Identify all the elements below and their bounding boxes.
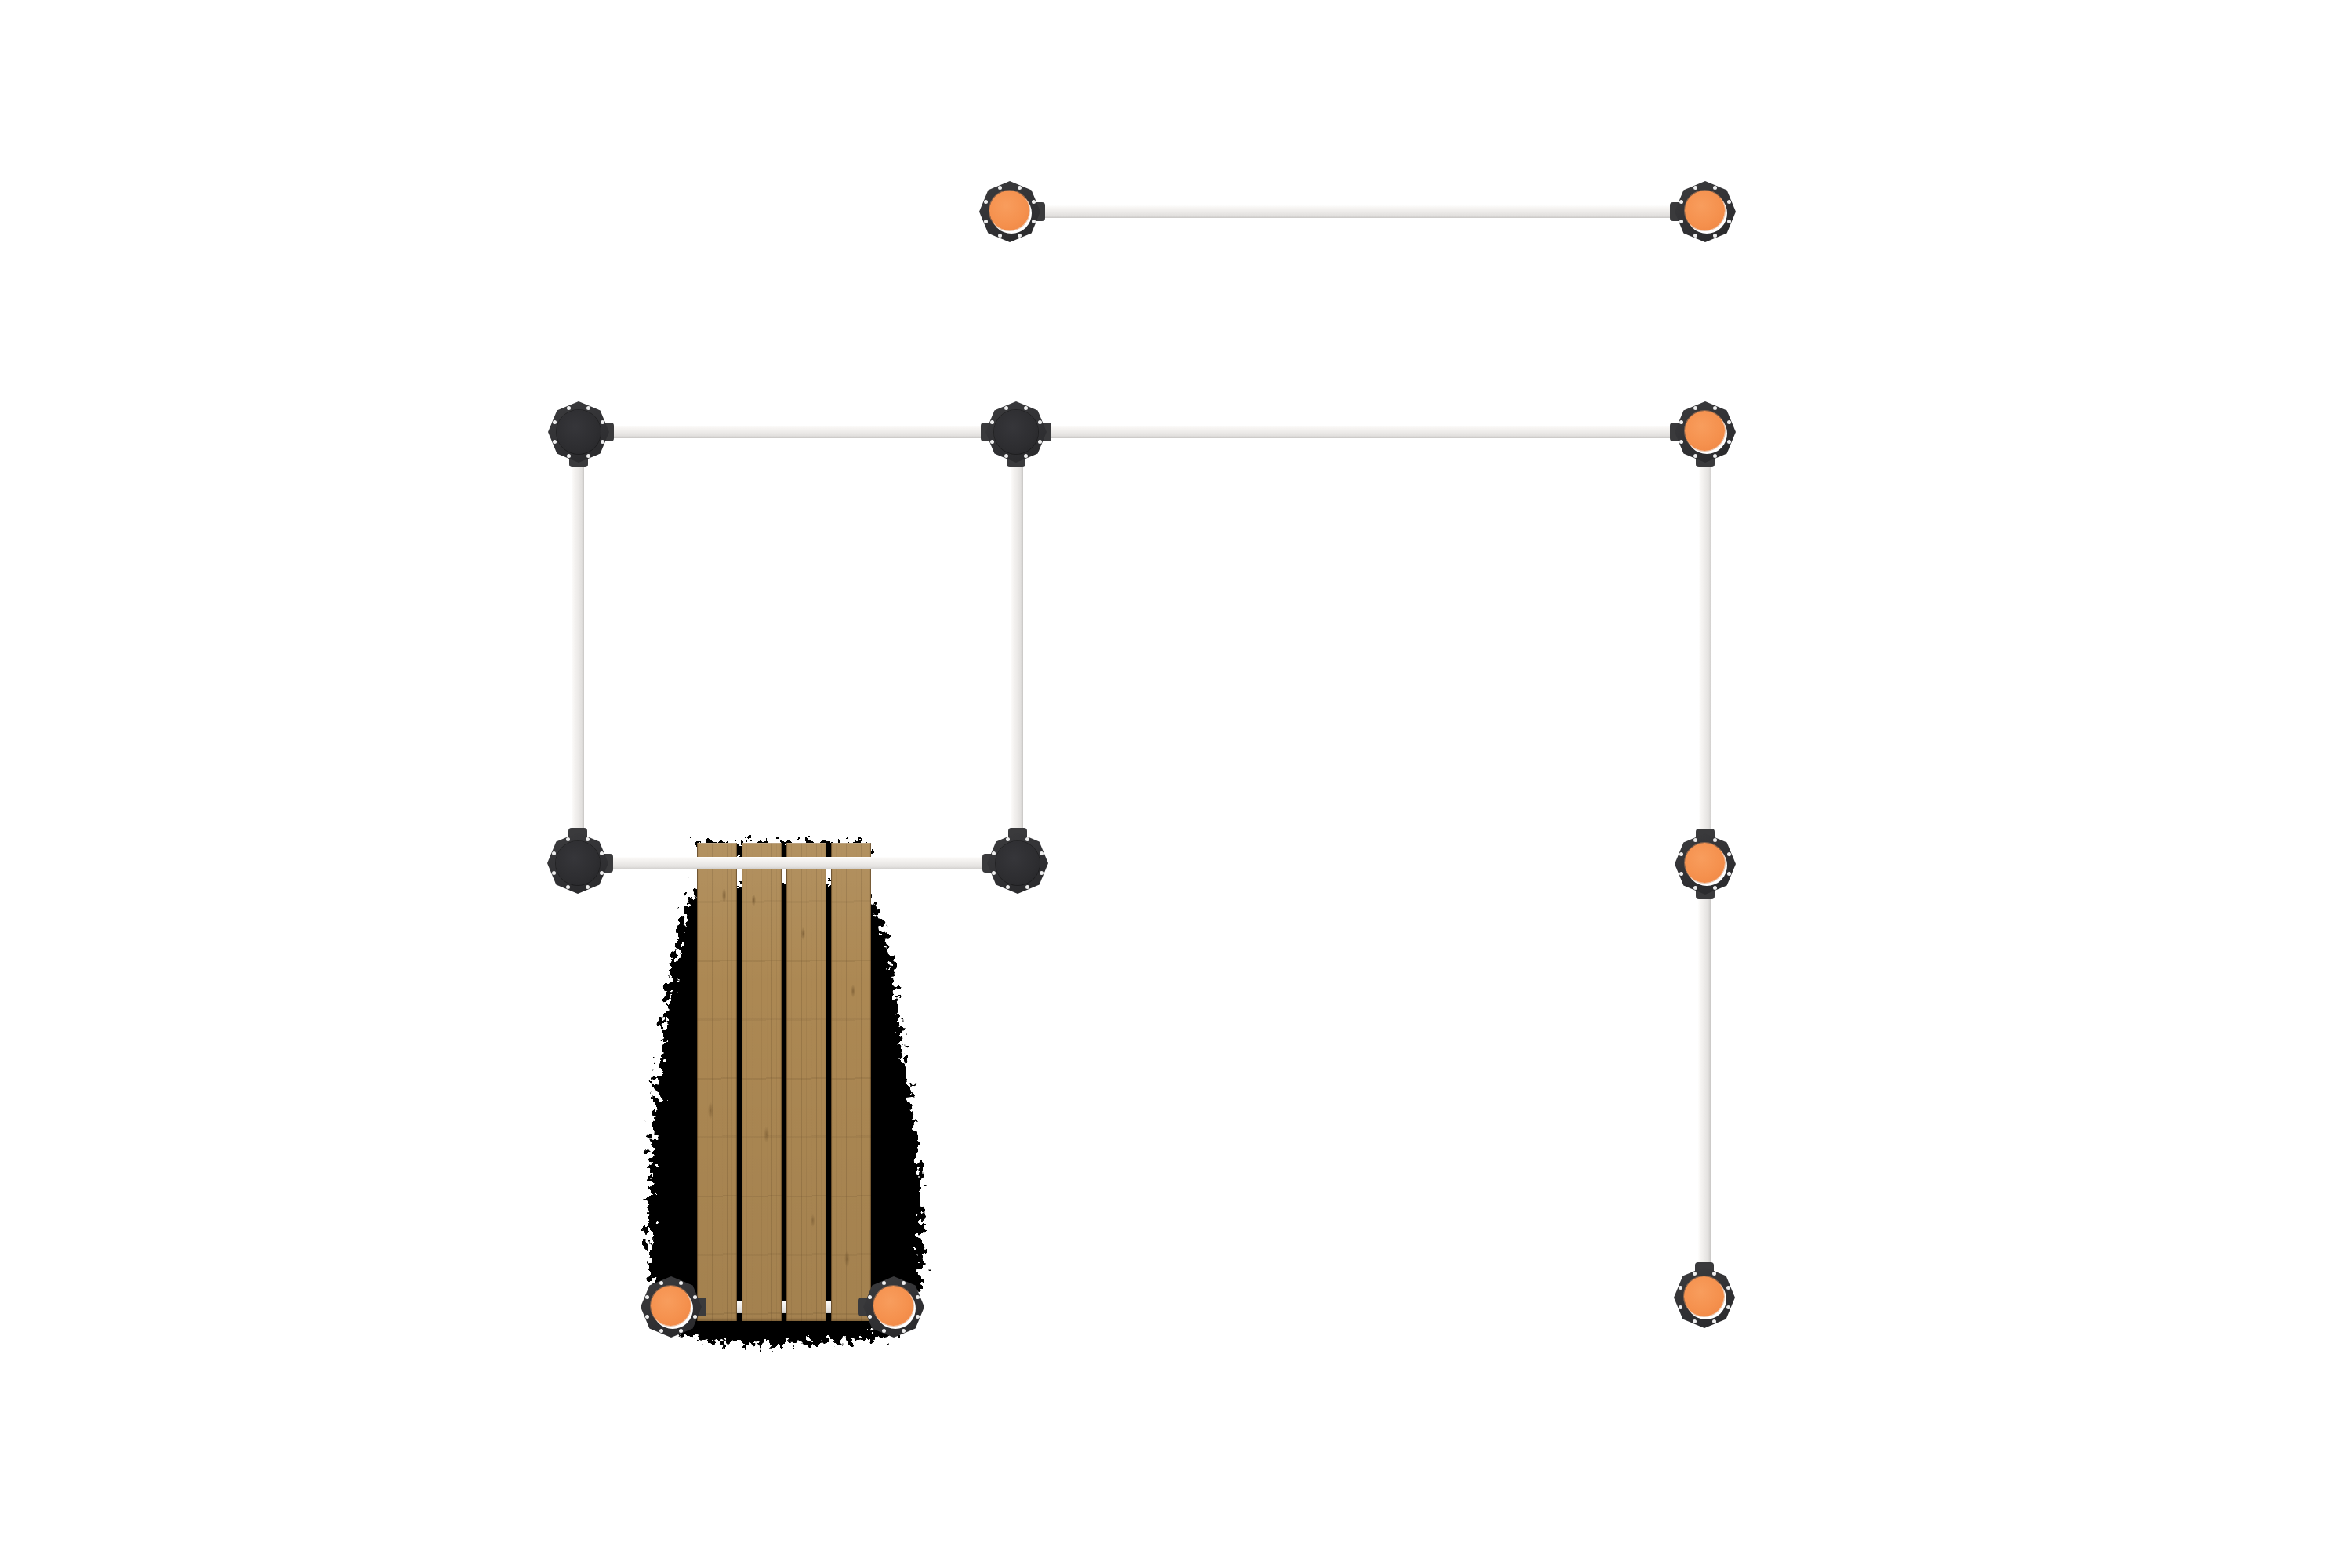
node-cap-orange	[989, 191, 1029, 230]
frame-tube-b6[interactable]	[1699, 432, 1711, 864]
connector-node-n4-black[interactable]	[985, 401, 1047, 463]
node-cap-orange	[651, 1286, 691, 1326]
node-screw-dot	[1693, 1319, 1697, 1323]
connector-node-n1-orange[interactable]	[979, 181, 1040, 242]
node-screw-dot	[1679, 200, 1683, 204]
node-screw-dot	[882, 1329, 886, 1333]
deck-plank-4[interactable]	[831, 843, 871, 1321]
deck-plank-1[interactable]	[697, 843, 737, 1321]
node-screw-dot	[868, 1295, 872, 1299]
deck-shadow-spray	[0, 0, 2352, 1568]
node-screw-dot	[1679, 852, 1683, 856]
node-screw-dot	[992, 851, 996, 855]
node-screw-dot	[601, 420, 604, 424]
node-screw-dot	[1006, 837, 1010, 841]
frame-tube-b5[interactable]	[1011, 432, 1023, 863]
node-screw-dot	[1038, 420, 1042, 424]
connector-node-n9-orange[interactable]	[641, 1276, 702, 1338]
node-screw-dot	[567, 454, 571, 458]
frame-tube-b1[interactable]	[1010, 205, 1705, 218]
frame-tube-b2[interactable]	[579, 426, 1016, 438]
node-screw-dot	[990, 420, 994, 424]
connector-node-n10-orange[interactable]	[863, 1276, 924, 1338]
node-disc-black	[994, 410, 1038, 454]
node-screw-dot	[1006, 885, 1010, 889]
node-screw-dot	[1693, 234, 1697, 238]
node-screw-dot	[1727, 420, 1731, 424]
node-screw-dot	[1693, 454, 1697, 458]
frame-tube-b3[interactable]	[1016, 426, 1705, 438]
deck-plank-2[interactable]	[742, 843, 782, 1321]
node-screw-dot	[552, 851, 556, 855]
node-screw-dot	[567, 406, 571, 410]
connector-node-n7-black[interactable]	[987, 833, 1048, 894]
frame-tube-b4[interactable]	[572, 432, 584, 863]
node-screw-dot	[1693, 886, 1697, 890]
node-cap-orange	[1685, 843, 1725, 883]
frame-tube-b8[interactable]	[1698, 864, 1711, 1298]
node-disc-black	[556, 841, 600, 885]
deck-plank-3[interactable]	[786, 843, 826, 1321]
structure-canvas[interactable]	[0, 0, 2352, 1568]
connector-node-n2-orange[interactable]	[1675, 181, 1736, 242]
node-screw-dot	[916, 1295, 920, 1299]
node-screw-dot	[659, 1329, 663, 1333]
node-screw-dot	[1693, 406, 1697, 410]
node-screw-dot	[1032, 200, 1036, 204]
connector-node-n6-black[interactable]	[547, 833, 608, 894]
node-cap-orange	[1685, 191, 1725, 230]
node-screw-dot	[1679, 1286, 1682, 1290]
connector-node-n8-orange[interactable]	[1675, 833, 1736, 895]
node-screw-dot	[1040, 851, 1044, 855]
node-disc-black	[557, 410, 601, 454]
node-screw-dot	[600, 851, 604, 855]
node-screw-dot	[1693, 1272, 1697, 1276]
node-screw-dot	[566, 837, 570, 841]
frame-tube-b7[interactable]	[578, 857, 1018, 869]
node-screw-dot	[693, 1295, 697, 1299]
node-screw-dot	[882, 1281, 886, 1285]
node-cap-orange	[1685, 411, 1725, 451]
node-cap-orange	[873, 1286, 913, 1326]
node-screw-dot	[998, 234, 1002, 238]
node-screw-dot	[984, 200, 988, 204]
node-screw-dot	[1693, 186, 1697, 190]
node-screw-dot	[566, 885, 570, 889]
node-screw-dot	[1693, 838, 1697, 842]
connector-node-n3-black[interactable]	[548, 401, 609, 463]
node-screw-dot	[645, 1295, 649, 1299]
node-screw-dot	[553, 420, 557, 424]
node-screw-dot	[659, 1281, 663, 1285]
node-disc-black	[996, 841, 1040, 885]
node-screw-dot	[1726, 1286, 1730, 1290]
connector-node-n5-orange[interactable]	[1675, 401, 1736, 463]
node-screw-dot	[1004, 406, 1008, 410]
node-screw-dot	[1004, 454, 1008, 458]
node-screw-dot	[1679, 420, 1683, 424]
node-screw-dot	[1727, 200, 1731, 204]
node-cap-orange	[1684, 1276, 1724, 1316]
node-screw-dot	[998, 186, 1002, 190]
node-screw-dot	[1727, 852, 1731, 856]
connector-node-n11-orange[interactable]	[1674, 1267, 1735, 1328]
